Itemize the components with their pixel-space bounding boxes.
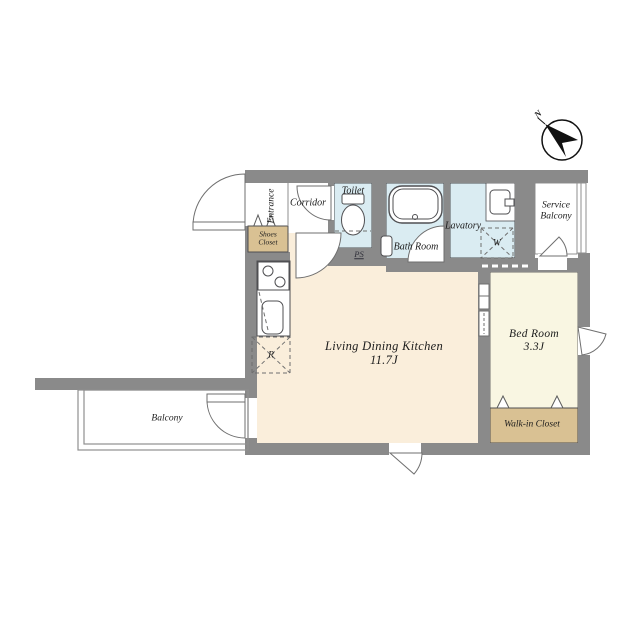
shower-icon: [381, 236, 392, 256]
bath-room-label: Bath Room: [394, 241, 439, 252]
balcony-door-arc: [207, 400, 245, 438]
bed-room-label: Bed Room 3.3J: [509, 328, 559, 354]
ldk-bottom-door-arc: [390, 453, 422, 474]
service-balcony-railing: [577, 183, 586, 253]
balcony-door-leaf: [207, 394, 245, 402]
washer-mark: W: [493, 239, 501, 250]
shoes-closet-label: Shoes Closet: [258, 231, 277, 248]
balcony-label: Balcony: [151, 414, 182, 425]
ldk-label: Living Dining Kitchen 11.7J: [325, 339, 443, 367]
floor-plan-drawing: [0, 0, 640, 640]
wall-top: [245, 170, 588, 183]
walk-in-closet-label: Walk-in Closet: [504, 420, 560, 431]
basin-tap-icon: [505, 199, 514, 206]
wall-balcony-bar: [35, 378, 246, 390]
wall-lavatory-sbalcony: [515, 183, 535, 262]
floor-plan: Entrance Corridor Shoes Closet Toilet Ba…: [0, 0, 640, 640]
entrance-door-arc: [193, 174, 245, 226]
entrance-label: Entrance: [267, 189, 278, 224]
refrigerator-mark: R: [268, 351, 274, 362]
toilet-label: Toilet: [342, 185, 364, 196]
lavatory-label: Lavatory: [445, 220, 481, 231]
pipe-space-mark: PS: [354, 250, 363, 260]
bedroom-door-arc: [578, 327, 606, 355]
compass-icon: [538, 118, 582, 160]
corridor-label: Corridor: [290, 197, 326, 208]
gap-balcony-door: [245, 398, 257, 438]
gap-entrance: [245, 183, 257, 226]
entrance-door-leaf: [193, 222, 245, 230]
service-balcony-label: Service Balcony: [540, 200, 571, 221]
